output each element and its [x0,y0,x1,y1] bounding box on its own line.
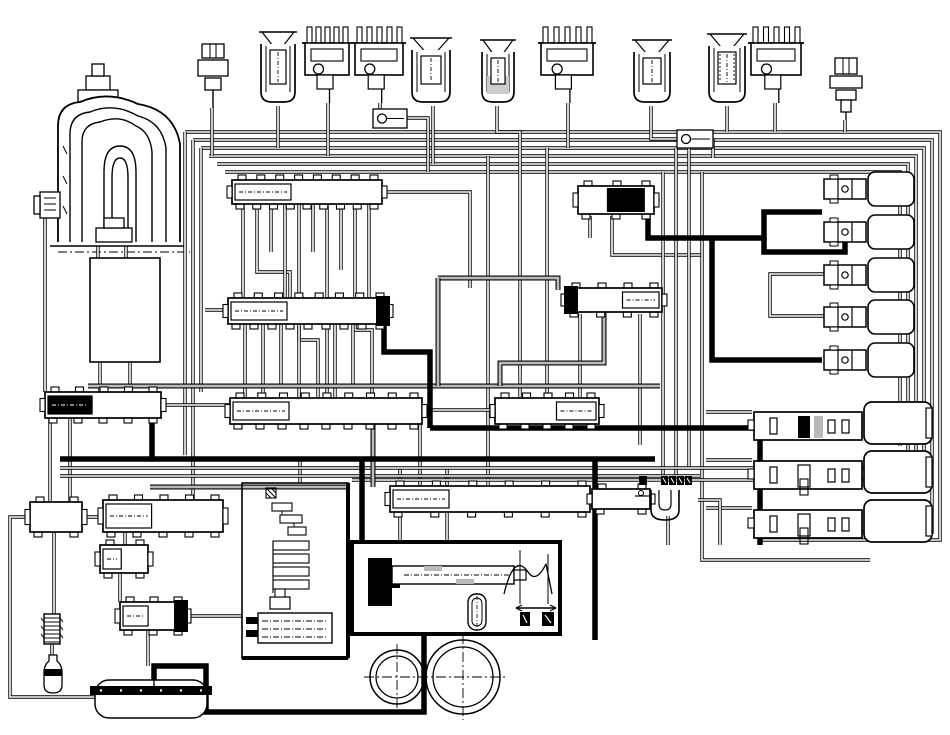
throttle-valve [98,495,228,537]
clutch-pack-c1 [302,27,352,103]
torque-converter [34,64,184,246]
secondary-regulator-valve [587,484,655,514]
clutch-pack-od [748,27,804,103]
accumulator-c3 [632,40,672,102]
shift-solenoid-assembly-3 [748,500,932,544]
lockup-signal-valve [573,181,659,219]
solenoid-4 [824,300,914,334]
converter-feed-chamber [90,258,160,362]
governor-assembly-box [242,483,348,658]
oil-pump [364,634,508,720]
pressure-regulator-valve [385,481,595,517]
shift-solenoid-assembly-1 [748,402,932,444]
pressure-limit-valve [95,540,153,578]
case-connector [198,44,228,108]
lockup-control-valve [115,597,191,635]
clutch-pack-c2 [352,27,406,103]
lube-relief-flask [44,655,62,693]
manual-valve-assembly [352,542,560,634]
solenoid-3 [824,258,914,292]
cutback-valve [25,497,87,537]
shift-valve-3-4 [490,393,604,429]
check-valve-1 [373,109,407,128]
pressure-switch [830,58,862,120]
shift-valve-2-3 [561,283,667,317]
upper-valve-body [227,175,387,209]
accumulator-c1 [410,38,452,102]
accumulator-b1 [259,32,297,102]
modulator-valve [40,387,166,423]
relay-valve [225,393,427,429]
shift-solenoid-assembly-2 [748,451,932,495]
check-valve-2 [677,130,713,148]
accumulator-c0 [707,34,747,102]
solenoid-5 [824,343,914,377]
clutch-pack-b2 [538,27,596,103]
solenoid-2 [824,215,914,249]
shift-valve-1-2 [223,293,393,329]
oil-strainer [90,670,212,718]
diagram-page [0,0,950,735]
solenoid-1 [824,172,914,206]
accumulator-c2 [480,40,516,102]
oil-cooler [41,614,63,644]
hydraulic-circuit-diagram [0,0,950,735]
